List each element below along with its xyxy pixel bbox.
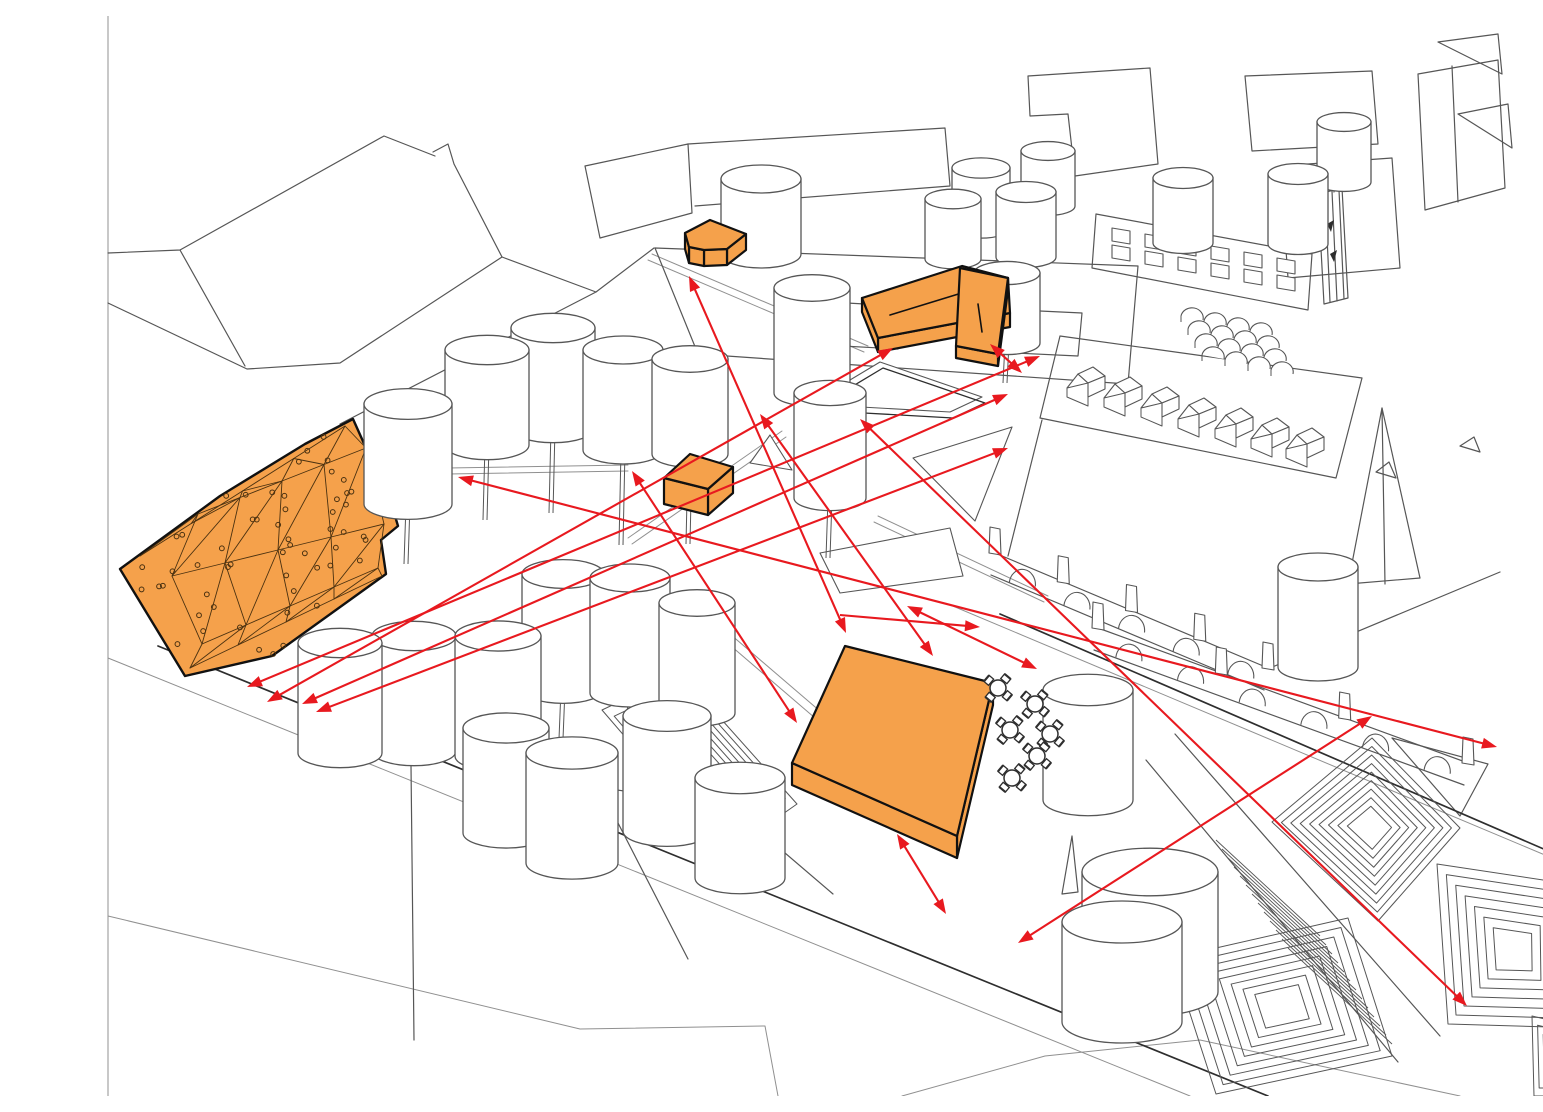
tree-top (445, 335, 529, 364)
tree-top (721, 165, 801, 193)
tree-top (1021, 142, 1075, 161)
window-pane (1145, 251, 1163, 267)
canopy-vault (1218, 339, 1240, 351)
table-with-chairs (996, 716, 1024, 744)
tree-top (1268, 164, 1328, 185)
wire-line (448, 471, 628, 474)
house-base (1286, 449, 1307, 467)
arrowhead (632, 471, 645, 487)
canopy-vault (1225, 352, 1247, 364)
tree-cylinder (794, 380, 866, 558)
tree-top (583, 336, 663, 364)
tree-top (590, 564, 670, 592)
red-arrow (907, 606, 1037, 669)
hatch-line (1216, 840, 1320, 936)
tree-top (652, 346, 728, 373)
terrace-ring (1493, 928, 1532, 971)
tree-body (652, 359, 728, 467)
tree-cylinder (1062, 901, 1182, 1043)
table-top (1029, 748, 1045, 764)
hatch-line (1288, 948, 1392, 1044)
arrowhead (1024, 356, 1040, 367)
terrace-ring (1243, 975, 1321, 1037)
wire-line (1376, 462, 1396, 478)
wire-line (1458, 104, 1512, 148)
tree-body (583, 350, 663, 464)
tree-top (511, 313, 595, 342)
wire-line (433, 144, 502, 257)
canopy-vault (1204, 313, 1226, 325)
tree-top (455, 621, 541, 651)
tree-top (364, 389, 452, 420)
site-axonometric-diagram (40, 16, 1543, 1096)
tree-top (996, 182, 1056, 203)
hatch-line (1228, 858, 1332, 954)
terrace-ring (1347, 806, 1391, 849)
wire-line (448, 465, 628, 468)
tree-body (1153, 178, 1213, 254)
table-top (990, 680, 1006, 696)
arrowhead (1481, 738, 1497, 749)
building-face (704, 249, 727, 266)
tree-top (1317, 113, 1371, 132)
wire-line (1460, 437, 1480, 452)
arrowhead (920, 641, 933, 656)
tree-body (794, 393, 866, 511)
tree-body (1278, 567, 1358, 681)
terrace-ring (1437, 864, 1543, 1028)
diagram-canvas (40, 16, 1543, 1096)
tree-cylinder (695, 762, 785, 893)
table-top (1027, 696, 1043, 712)
terrace-ring (1474, 907, 1543, 990)
scalloped-canopy (1181, 308, 1293, 376)
wire-line (1008, 420, 1042, 556)
tree-cylinder (925, 189, 981, 269)
wire-line (1452, 66, 1458, 202)
window-pane (1244, 269, 1262, 285)
arch (1424, 757, 1450, 774)
window-pane (1277, 258, 1295, 274)
arrowhead (965, 620, 980, 631)
canopy-vault (1257, 336, 1279, 348)
tree-top (925, 189, 981, 209)
tree-body (925, 199, 981, 269)
pillar (1215, 647, 1227, 675)
window-pane (1244, 252, 1262, 268)
tree-top (1043, 674, 1133, 706)
hatch-line (1264, 912, 1368, 1008)
wire-line (585, 144, 692, 238)
wire-line (108, 257, 502, 369)
table-top (1004, 770, 1020, 786)
arrowhead (1021, 658, 1037, 669)
terrace-ring (1538, 1025, 1543, 1088)
canopy-vault (1211, 326, 1233, 338)
pillar (1126, 585, 1138, 613)
arrowhead (458, 475, 474, 486)
wire-line (1438, 34, 1502, 74)
canopy-vault (1250, 323, 1272, 335)
house-base (1141, 408, 1162, 426)
arrowhead (933, 898, 946, 914)
wire-line (1062, 836, 1078, 894)
terrace-ring (1300, 764, 1434, 895)
canopy-vault (1227, 318, 1249, 330)
tree-body (590, 578, 670, 707)
arrowhead (784, 707, 797, 723)
campanile-mark (1330, 250, 1337, 262)
tree-cylinder (1268, 164, 1328, 255)
tree-cylinder (1153, 168, 1213, 254)
tree-body (1268, 174, 1328, 255)
building-roof (792, 646, 993, 836)
wire-line (1332, 191, 1337, 301)
wire-line (180, 250, 245, 366)
tree-top (1278, 553, 1358, 581)
plaza-island (820, 528, 963, 593)
arch (1239, 689, 1265, 706)
tree-body (695, 778, 785, 894)
house-base (1215, 429, 1236, 447)
arrow-shaft (840, 615, 976, 627)
tree-cylinder (1278, 553, 1358, 681)
tree-top (952, 158, 1010, 178)
wire-line (502, 248, 654, 292)
tree-top (463, 713, 549, 743)
arrowhead (1018, 930, 1034, 943)
window-pane (1211, 246, 1229, 262)
wire-line (108, 136, 435, 253)
house-base (1178, 419, 1199, 437)
tree-body (364, 404, 452, 519)
arrowhead (689, 276, 700, 292)
window-pane (1211, 263, 1229, 279)
arch (1301, 712, 1327, 729)
arrowhead (907, 606, 923, 617)
pillar (1262, 642, 1274, 670)
pillar (1057, 556, 1069, 584)
arrow-shaft (911, 608, 1034, 668)
arrowhead (247, 676, 263, 687)
house-base (1104, 398, 1125, 416)
window-pane (1277, 275, 1295, 291)
canopy-vault (1234, 331, 1256, 343)
tree-cylinder (996, 182, 1056, 268)
tree-body (1043, 690, 1133, 816)
pillar (1194, 613, 1206, 641)
wire-line (948, 604, 1543, 871)
arrowhead (835, 617, 846, 633)
tree-top (623, 701, 711, 732)
canopy-vault (1195, 334, 1217, 346)
canopy-vault (1181, 308, 1203, 320)
wire-line (1382, 408, 1385, 584)
window-pane (1112, 245, 1130, 261)
wire-line (902, 1040, 1460, 1096)
canopy-vault (1264, 349, 1286, 361)
table-with-chairs (998, 764, 1026, 792)
canopy-vault (1188, 321, 1210, 333)
canopy-vault (1241, 344, 1263, 356)
tree-top (695, 762, 785, 794)
arrowhead (992, 394, 1008, 405)
hatch-line (1270, 921, 1374, 1017)
canopy-vault (1271, 362, 1293, 374)
terrace-ring (1231, 966, 1333, 1047)
tree-body (445, 350, 529, 460)
tree-body (526, 753, 618, 879)
terrace-ring (1255, 985, 1309, 1029)
hatch-line (1240, 876, 1344, 972)
tree-cylinder (526, 737, 618, 879)
pillar (1092, 602, 1104, 630)
house-base (1251, 439, 1272, 457)
tree-top (1153, 168, 1213, 189)
terrace-ring (1196, 937, 1369, 1075)
tree-body (996, 192, 1056, 268)
hatch-line (1222, 849, 1326, 945)
hatch-line (1246, 885, 1350, 981)
house-base (1067, 388, 1088, 406)
orange-pavilion (792, 646, 993, 858)
building-roof (956, 268, 1008, 354)
wire-line (108, 916, 778, 1096)
tree-top (1062, 901, 1182, 943)
tree-top (526, 737, 618, 769)
canopy-vault (1248, 357, 1270, 369)
plaza-island (913, 427, 1012, 521)
window-pane (1178, 257, 1196, 273)
terrace-ring (1291, 755, 1443, 903)
tree-top (774, 275, 850, 302)
window-pane (1112, 228, 1130, 244)
table-top (1042, 726, 1058, 742)
table-top (1002, 722, 1018, 738)
